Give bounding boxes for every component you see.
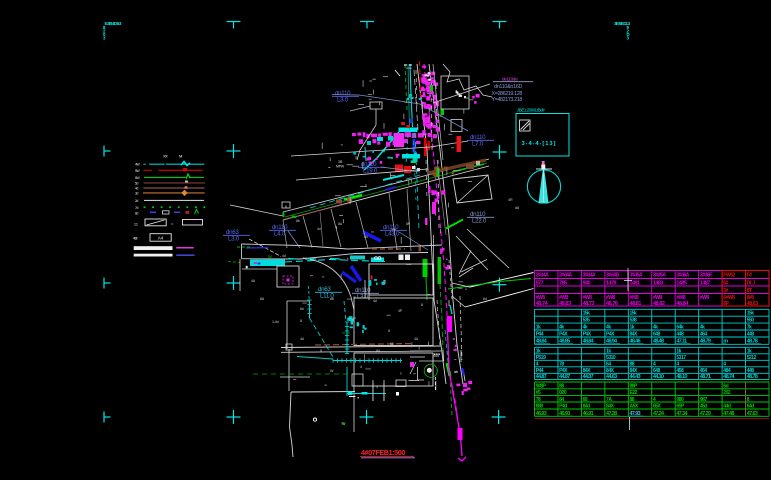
svg-text:P4X: P4X — [559, 331, 568, 337]
svg-text:dn110&n16D: dn110&n16D — [494, 84, 522, 90]
svg-text:d4: d4 — [364, 235, 368, 239]
svg-text:4d: 4d — [317, 227, 321, 231]
svg-text:88: 88 — [630, 397, 635, 403]
svg-text:888: 888 — [536, 404, 544, 410]
svg-text:448: 448 — [747, 331, 755, 337]
svg-text:6d: 6d — [723, 384, 728, 390]
svg-text:88P: 88P — [630, 384, 639, 390]
svg-text:MPW: MPW — [336, 165, 345, 169]
svg-text:15k: 15k — [747, 311, 755, 317]
svg-text:65X: 65X — [653, 404, 662, 410]
svg-text:68: 68 — [583, 397, 588, 403]
svg-text:L3.0: L3.0 — [357, 294, 369, 301]
svg-text:785: 785 — [559, 280, 567, 286]
svg-text:68: 68 — [390, 342, 394, 346]
svg-text:4t8t: 4t8t — [133, 236, 138, 240]
svg-text:4: 4 — [430, 242, 432, 246]
svg-text:4d: 4d — [282, 254, 286, 258]
svg-text:3#d4A: 3#d4A — [583, 273, 596, 279]
svg-text:648: 648 — [653, 368, 661, 374]
svg-text:448: 448 — [676, 331, 684, 337]
svg-text:F#: F# — [747, 273, 753, 279]
svg-text:2d: 2d — [135, 199, 138, 203]
svg-text:P4X: P4X — [559, 368, 568, 374]
svg-text:464: 464 — [700, 331, 708, 337]
svg-text:4: 4 — [360, 365, 362, 369]
svg-text:JBE1:2000LtBd#: JBE1:2000LtBd# — [517, 108, 545, 113]
svg-text:3#d6A: 3#d6A — [676, 273, 689, 279]
svg-text:M: M — [179, 154, 182, 159]
svg-text:64k: 64k — [676, 324, 684, 330]
svg-text:84d: 84d — [583, 404, 591, 410]
svg-text:6#: 6# — [723, 280, 728, 286]
svg-text:84X: 84X — [583, 368, 592, 374]
svg-text:538: 538 — [630, 318, 638, 324]
svg-text:8d: 8d — [483, 297, 487, 301]
svg-text:7d: 7d — [135, 206, 138, 210]
svg-text:577: 577 — [536, 280, 544, 286]
svg-text:84X: 84X — [630, 368, 639, 374]
svg-text:8d: 8d — [376, 349, 380, 353]
svg-text:84X: 84X — [606, 404, 615, 410]
svg-text:15k: 15k — [630, 311, 638, 317]
svg-text:88: 88 — [630, 362, 635, 368]
svg-text:7k: 7k — [747, 324, 752, 330]
svg-text:DLJ: DLJ — [747, 280, 756, 286]
svg-text:3-4-4-[13]: 3-4-4-[13] — [522, 141, 557, 147]
svg-text:3d: 3d — [135, 191, 138, 195]
svg-text:8b: 8b — [296, 219, 300, 223]
svg-text:4k: 4k — [606, 324, 611, 330]
svg-text:940: 940 — [583, 280, 591, 286]
svg-text:4k: 4k — [583, 324, 588, 330]
svg-text:1k: 1k — [630, 324, 635, 330]
svg-text:84X: 84X — [606, 368, 615, 374]
svg-text:2#d4A: 2#d4A — [536, 273, 549, 279]
svg-text:78: 78 — [536, 397, 541, 403]
svg-text:A4: A4 — [158, 236, 164, 241]
svg-text:9#8P: 9#8P — [536, 384, 547, 390]
svg-text:P4X: P4X — [606, 331, 615, 337]
svg-text:1k: 1k — [536, 349, 541, 355]
svg-text:P44: P44 — [536, 368, 544, 374]
svg-text:8: 8 — [305, 257, 307, 261]
svg-text:#5: #5 — [536, 390, 541, 396]
svg-text:448: 448 — [747, 368, 755, 374]
svg-text:8d: 8d — [135, 211, 138, 215]
svg-text:X=286219.128: X=286219.128 — [492, 91, 523, 97]
svg-text:4d: 4d — [300, 337, 304, 341]
svg-text:8d: 8d — [300, 307, 304, 311]
svg-text:15k: 15k — [583, 311, 591, 317]
svg-text:E22: E22 — [630, 390, 638, 396]
svg-text:64d: 64d — [747, 404, 755, 410]
svg-text:1485: 1485 — [676, 280, 686, 286]
svg-text:P44: P44 — [536, 331, 544, 337]
svg-text:3#d5A: 3#d5A — [653, 273, 666, 279]
svg-text:458: 458 — [676, 368, 684, 374]
svg-text:ab: ab — [454, 370, 458, 374]
svg-text:454: 454 — [700, 368, 708, 374]
svg-text:L43.0: L43.0 — [385, 231, 400, 238]
svg-text:L22.0: L22.0 — [472, 218, 487, 225]
svg-text:5317: 5317 — [676, 355, 686, 361]
svg-text:8T: 8T — [747, 288, 752, 294]
svg-text:d8: d8 — [515, 206, 519, 210]
svg-text:L4.0: L4.0 — [274, 231, 286, 238]
svg-text:1483: 1483 — [653, 280, 663, 286]
svg-text:1k: 1k — [747, 349, 752, 355]
svg-text:4k: 4k — [700, 324, 705, 330]
svg-text:8: 8 — [300, 319, 302, 323]
svg-text:3#: 3# — [723, 288, 728, 294]
svg-text:8: 8 — [388, 329, 390, 333]
svg-text:1k: 1k — [606, 349, 611, 355]
svg-text:987: 987 — [700, 397, 708, 403]
svg-text:535: 535 — [583, 318, 591, 324]
svg-text:3#d5A: 3#d5A — [630, 273, 643, 279]
svg-text:45d: 45d — [700, 404, 708, 410]
svg-text:E3B4D63: E3B4D63 — [105, 21, 122, 26]
svg-text:020: 020 — [559, 390, 567, 396]
svg-text:550: 550 — [747, 318, 755, 324]
svg-text:A5X: A5X — [630, 404, 639, 410]
svg-text:88: 88 — [559, 384, 564, 390]
svg-text:4k: 4k — [653, 324, 658, 330]
svg-text:4#07FEB1:500: 4#07FEB1:500 — [361, 448, 405, 457]
svg-text:980: 980 — [676, 397, 684, 403]
svg-text:5310: 5310 — [606, 355, 616, 361]
svg-text:202: 202 — [723, 390, 731, 396]
svg-text:de110de: de110de — [502, 76, 518, 81]
svg-text:484: 484 — [723, 368, 731, 374]
svg-text:7A: 7A — [606, 397, 612, 403]
svg-text:#W8: #W8 — [700, 295, 710, 301]
svg-text:8: 8 — [285, 205, 287, 209]
svg-text:1481: 1481 — [630, 280, 640, 286]
svg-text:4k: 4k — [559, 324, 564, 330]
svg-text:2#d4A: 2#d4A — [559, 273, 572, 279]
svg-text:L19.0: L19.0 — [363, 168, 378, 175]
svg-text:1: 1 — [465, 287, 467, 291]
svg-text:L3.0: L3.0 — [337, 97, 349, 104]
svg-text:3#d6F: 3#d6F — [700, 273, 712, 279]
svg-text:3#d4B: 3#d4B — [606, 273, 619, 279]
svg-text:L3.0: L3.0 — [228, 236, 240, 243]
svg-text:5d: 5d — [135, 181, 138, 185]
svg-text:44d: 44d — [723, 404, 731, 410]
svg-text:L7.0: L7.0 — [472, 141, 484, 148]
svg-text:8: 8 — [320, 349, 322, 353]
svg-text:1:1: 1:1 — [134, 223, 138, 227]
svg-text:4d: 4d — [373, 299, 377, 303]
svg-text:P4X: P4X — [583, 331, 592, 337]
svg-text:84X: 84X — [630, 331, 639, 337]
svg-text:d8: d8 — [330, 297, 334, 301]
svg-text:1-4d: 1-4d — [272, 320, 279, 324]
svg-text:84: 84 — [559, 397, 564, 403]
svg-text:65P: 65P — [676, 404, 685, 410]
svg-text:W: W — [341, 421, 345, 426]
svg-text:648: 648 — [653, 331, 661, 337]
svg-text:8: 8 — [421, 303, 423, 307]
svg-text:FW62: FW62 — [723, 273, 735, 279]
svg-text:1487: 1487 — [700, 280, 710, 286]
svg-text:5212: 5212 — [747, 355, 757, 361]
svg-text:1479: 1479 — [606, 280, 616, 286]
svg-text:W: W — [268, 254, 272, 259]
svg-text:3B: 3B — [338, 160, 343, 164]
svg-text:1k: 1k — [536, 324, 541, 330]
svg-text:64: 64 — [606, 362, 611, 368]
svg-text:1k: 1k — [676, 349, 681, 355]
svg-text:78: 78 — [559, 362, 564, 368]
svg-text:4d: 4d — [135, 187, 138, 191]
svg-text:P519: P519 — [536, 355, 546, 361]
svg-text:4R: 4R — [508, 198, 513, 202]
svg-text:Y=482173.218: Y=482173.218 — [492, 97, 523, 103]
svg-text:P4d: P4d — [559, 404, 567, 410]
